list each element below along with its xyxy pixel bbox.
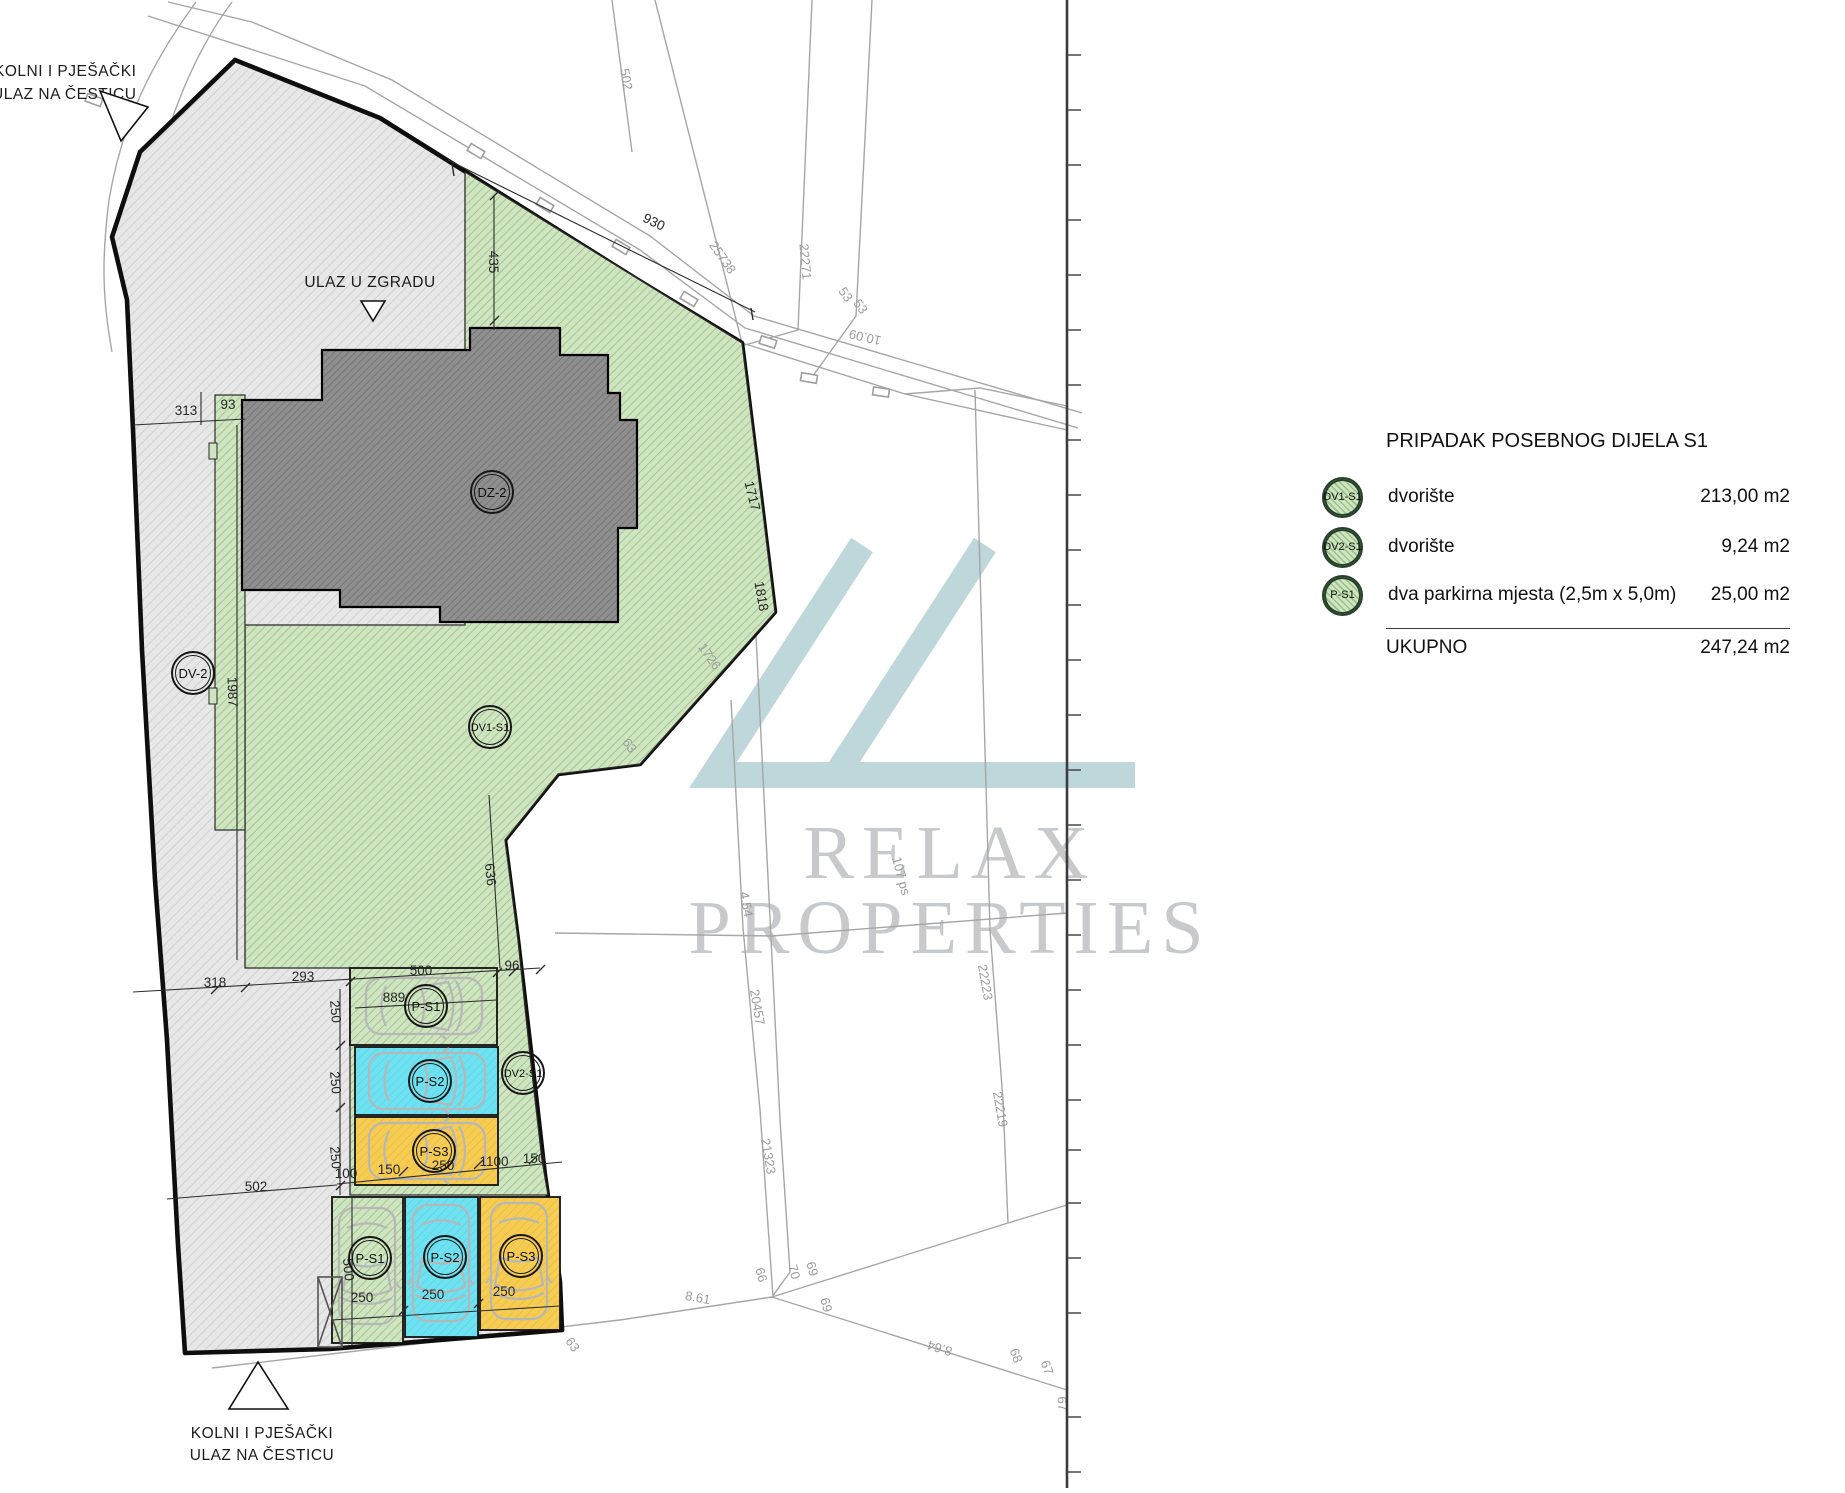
- legend-total-label: UKUPNO: [1386, 637, 1467, 659]
- dim-label: 150: [378, 1162, 401, 1177]
- dim-label: 250: [327, 1071, 344, 1095]
- dim-label: 435: [486, 251, 501, 274]
- parcel-number: 8.64: [925, 1337, 954, 1359]
- parcel-number: 70: [785, 1263, 803, 1281]
- entrance-top-label: KOLNI I PJEŠAČKI: [0, 63, 136, 80]
- zone-label-text: P-S1: [356, 1251, 385, 1266]
- legend-badge-dv1s1: DV1-S1: [1322, 477, 1363, 518]
- survey-baseline: [1067, 0, 1081, 1488]
- legend-value: 213,00 m2: [1700, 486, 1790, 508]
- dim-label: 250: [351, 1290, 374, 1305]
- entrance-top-arrow-icon: [100, 91, 148, 141]
- site-plan-svg: RELAX PROPERTIES: [0, 0, 1845, 1488]
- zone-label-text: DV-2: [179, 666, 208, 681]
- parcel-number: 22219: [990, 1090, 1011, 1128]
- legend-row-dv2s1: DV2-S1 dvorište 9,24 m2: [1322, 522, 1790, 572]
- legend-value: 9,24 m2: [1721, 536, 1790, 558]
- legend-desc: dvorište: [1388, 486, 1455, 508]
- parcel-number: 8.61: [684, 1288, 712, 1307]
- dim-label: 318: [204, 975, 227, 990]
- parcel-number: 22271: [796, 243, 814, 280]
- legend-total-row: UKUPNO 247,24 m2: [1386, 628, 1790, 659]
- legend-desc: dvorište: [1388, 536, 1455, 558]
- parcel-number: 69: [817, 1296, 835, 1314]
- entrance-bottom-arrow-icon: [229, 1362, 288, 1409]
- legend-row-ps1: P-S1 dva parkirna mjesta (2,5m x 5,0m) 2…: [1322, 570, 1790, 620]
- parcel-number: 502: [617, 67, 636, 91]
- legend-value: 25,00 m2: [1711, 584, 1790, 606]
- zone-label-text: DV1-S1: [471, 722, 510, 734]
- dim-label: 293: [292, 969, 315, 984]
- dim-label: 502: [245, 1179, 268, 1194]
- parcel-number: 67: [1038, 1358, 1057, 1377]
- parcel-number: 63: [562, 1334, 583, 1354]
- entrance-bottom-label: KOLNI I PJEŠAČKI: [191, 1425, 333, 1442]
- yard-strip: [215, 395, 245, 830]
- dim-label: 93: [220, 397, 235, 412]
- dim-label: 100: [335, 1166, 358, 1181]
- legend-badge-dv2s1: DV2-S1: [1322, 527, 1363, 568]
- dim-label: 250: [422, 1287, 445, 1302]
- yard-strip-door: [209, 688, 217, 704]
- dim-label: 636: [482, 863, 499, 887]
- legend-badge-ps1: P-S1: [1322, 575, 1363, 616]
- yard-strip-door: [209, 443, 217, 459]
- legend-panel: PRIPADAK POSEBNOG DIJELA S1 DV1-S1 dvori…: [1322, 430, 1792, 665]
- watermark-text-relax: RELAX: [803, 811, 1096, 895]
- zone-label-text: P-S3: [507, 1249, 536, 1264]
- parcel-number: 53: [835, 284, 856, 304]
- watermark-text-properties: PROPERTIES: [688, 886, 1211, 970]
- entrance-top: KOLNI I PJEŠAČKI ULAZ NA ČESTICU: [0, 63, 148, 141]
- dim-label: 1100: [479, 1154, 508, 1169]
- parcel-number: 69: [803, 1260, 821, 1278]
- zone-label-text: DV2-S1: [504, 1068, 543, 1080]
- parcel-number: 20457: [747, 988, 768, 1026]
- parcel-number: 21323: [758, 1137, 779, 1175]
- zone-label-text: P-S3: [420, 1144, 449, 1159]
- dim-label: 250: [493, 1284, 516, 1299]
- entrance-bottom: KOLNI I PJEŠAČKI ULAZ NA ČESTICU: [190, 1362, 334, 1464]
- zone-label-text: P-S2: [431, 1250, 460, 1265]
- parcel-number: 66: [752, 1266, 770, 1284]
- dim-label: 500: [410, 963, 433, 978]
- zone-label-text: DZ-2: [478, 485, 507, 500]
- dim-label: 96: [504, 958, 519, 973]
- dim-label: 313: [175, 403, 198, 418]
- parcel-number: 68: [1007, 1346, 1026, 1365]
- dim-label: 150: [523, 1151, 546, 1166]
- entrance-bottom-label: ULAZ NA ČESTICU: [190, 1447, 334, 1464]
- legend-row-dv1s1: DV1-S1 dvorište 213,00 m2: [1322, 472, 1790, 522]
- parcel-number: 25738: [706, 238, 739, 276]
- legend-title: PRIPADAK POSEBNOG DIJELA S1: [1386, 430, 1708, 453]
- legend-total-value: 247,24 m2: [1700, 637, 1790, 659]
- building-entrance-label: ULAZ U ZGRADU: [304, 274, 435, 291]
- dim-label: 930: [641, 210, 668, 233]
- dim-label: 889: [383, 990, 406, 1005]
- dim-label: 1987: [224, 677, 240, 708]
- zone-label-text: P-S2: [416, 1074, 445, 1089]
- parcel-number: 53: [850, 296, 871, 316]
- zone-label-text: P-S1: [412, 999, 441, 1014]
- legend-desc: dva parkirna mjesta (2,5m x 5,0m): [1388, 584, 1676, 606]
- dim-label: 250: [327, 1000, 344, 1024]
